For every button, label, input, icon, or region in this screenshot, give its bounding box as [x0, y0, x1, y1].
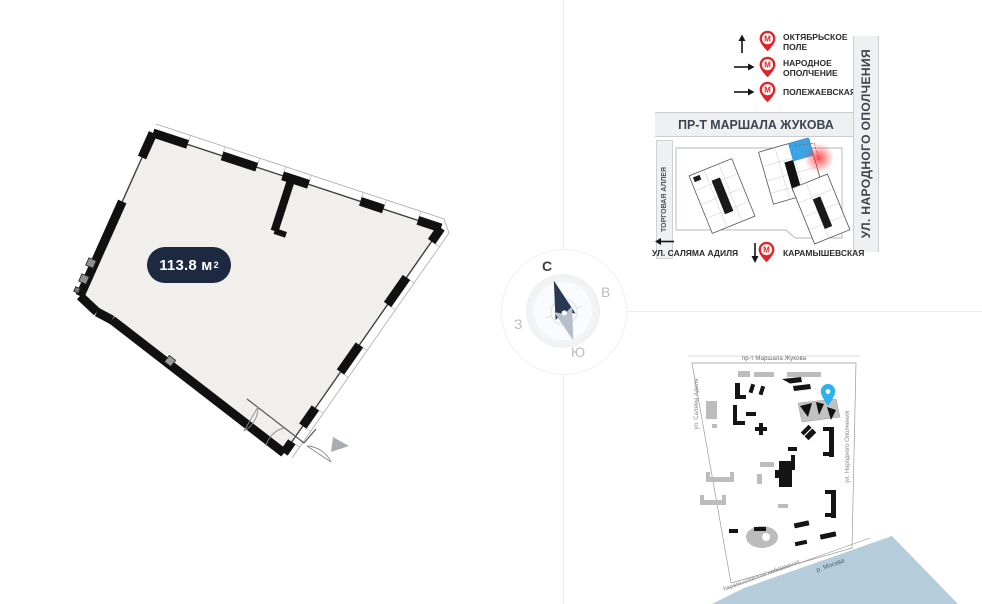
compass	[501, 249, 627, 375]
page: М	[0, 0, 982, 604]
metro-pin-icon	[759, 30, 776, 52]
building-hole	[762, 533, 770, 541]
arrow-left-icon	[655, 237, 675, 246]
arrow-right-icon	[733, 87, 755, 97]
metro-station-label: ОКТЯБРЬСКОЕ ПОЛЕ	[783, 33, 848, 52]
siteplan-street-right: ул. Народного Ополчения	[845, 411, 851, 483]
street-band-top: ПР-Т МАРШАЛА ЖУКОВА	[655, 112, 856, 137]
metro-pin-icon	[758, 241, 775, 263]
siteplan-street-left: ул. Саляма Адиля	[694, 379, 700, 430]
metro-pin-icon	[759, 56, 776, 78]
arrow-right-icon	[733, 62, 755, 72]
metro-station-label: ПОЛЕЖАЕВСКАЯ	[783, 88, 856, 98]
compass-label-west: З	[514, 316, 522, 332]
compass-label-south: Ю	[571, 344, 585, 360]
compass-needle-icon	[502, 250, 626, 374]
metro-station-label: НАРОДНОЕ ОПОЛЧЕНИЕ	[783, 59, 838, 78]
street-top-label: ПР-Т МАРШАЛА ЖУКОВА	[678, 117, 834, 132]
floor-plan-interior	[80, 133, 441, 453]
siteplan-street-top: пр-т Маршала Жукова	[742, 355, 807, 362]
site-plan[interactable]: пр-т Маршала Жукова ул. Саляма Адиля ул.…	[680, 350, 982, 604]
area-badge: 113.8 м2	[147, 247, 231, 283]
arrow-up-icon	[737, 34, 747, 54]
metro-bottom-label: КАРАМЫШЕВСКАЯ	[783, 249, 864, 259]
area-value: 113.8 м	[159, 257, 212, 274]
compass-label-east: В	[601, 284, 610, 300]
compass-label-north: С	[542, 258, 552, 274]
unit-highlight-glow	[804, 143, 834, 173]
area-sup: 2	[214, 260, 219, 270]
location-map[interactable]: ОКТЯБРЬСКОЕ ПОЛЕ НАРОДНОЕ ОПОЛЧЕНИЕ ПОЛЕ…	[648, 8, 884, 272]
street-bottom-label: УЛ. САЛЯМА АДИЛЯ	[652, 249, 738, 259]
metro-pin-icon	[759, 81, 776, 103]
entry-arrow-icon	[331, 437, 349, 452]
floor-plan[interactable]	[40, 100, 460, 480]
